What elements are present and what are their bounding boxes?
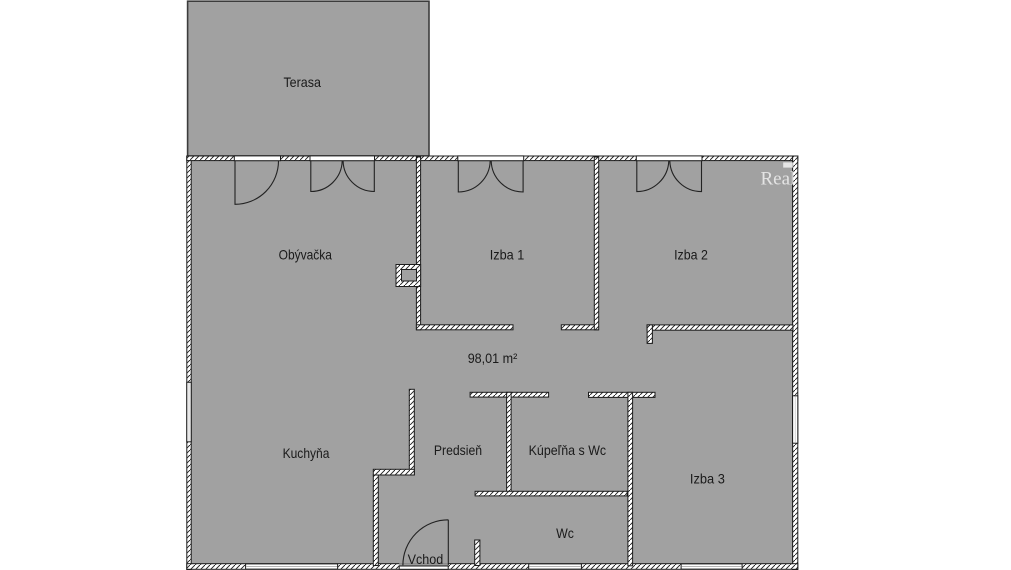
- svg-text:Terasa: Terasa: [283, 74, 321, 90]
- svg-text:Izba 3: Izba 3: [690, 471, 725, 487]
- svg-text:Obývačka: Obývačka: [279, 247, 332, 263]
- svg-text:Wc: Wc: [556, 525, 574, 541]
- svg-text:Izba 1: Izba 1: [490, 247, 525, 263]
- svg-text:Izba 2: Izba 2: [674, 247, 708, 263]
- svg-text:Kúpeľňa s Wc: Kúpeľňa s Wc: [529, 442, 607, 458]
- svg-text:98,01 m²: 98,01 m²: [468, 350, 518, 366]
- svg-text:Predsieň: Predsieň: [434, 442, 482, 458]
- svg-text:Kuchyňa: Kuchyňa: [283, 445, 330, 461]
- svg-text:Real: Real: [761, 169, 796, 190]
- svg-text:Vchod: Vchod: [408, 551, 444, 567]
